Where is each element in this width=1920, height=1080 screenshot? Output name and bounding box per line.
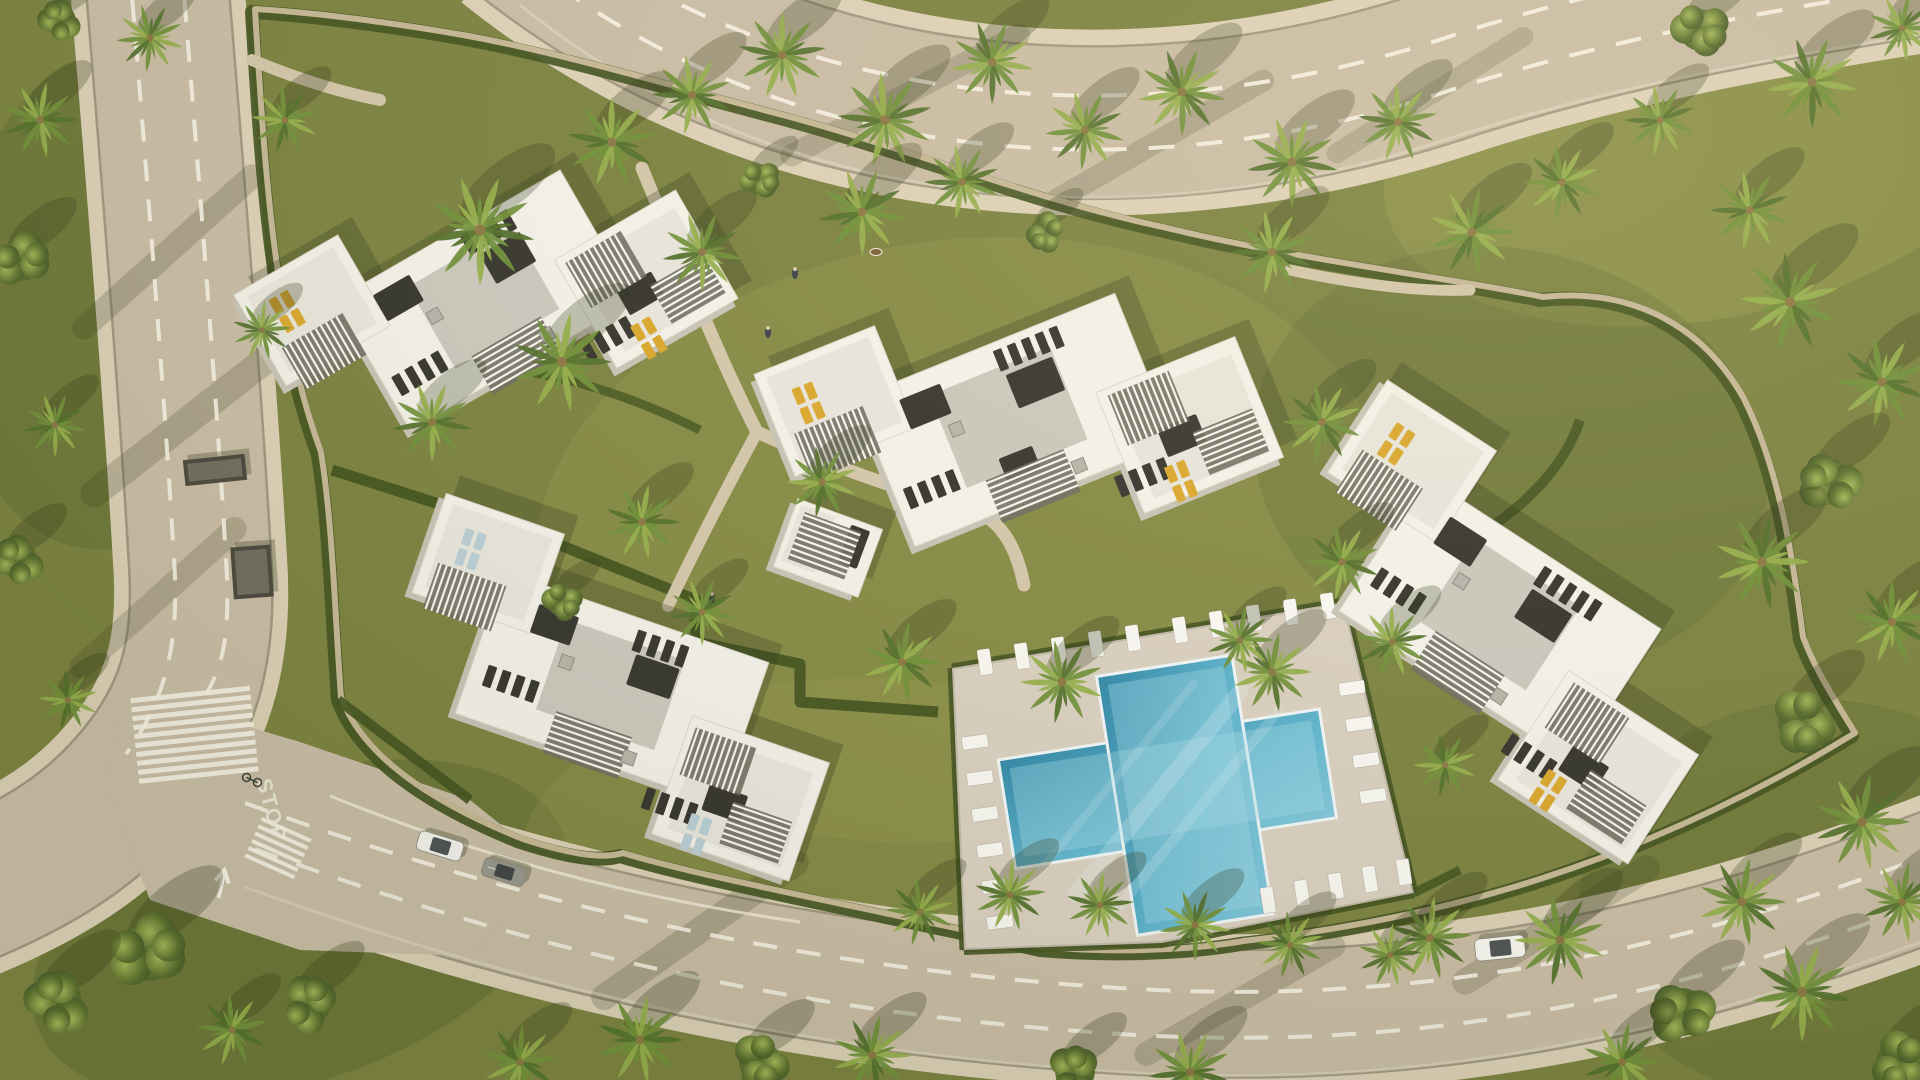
sunlight-overlay — [0, 0, 1920, 1080]
aerial-site-render: STOP — [0, 0, 1920, 1080]
scene-svg: STOP — [0, 0, 1920, 1080]
